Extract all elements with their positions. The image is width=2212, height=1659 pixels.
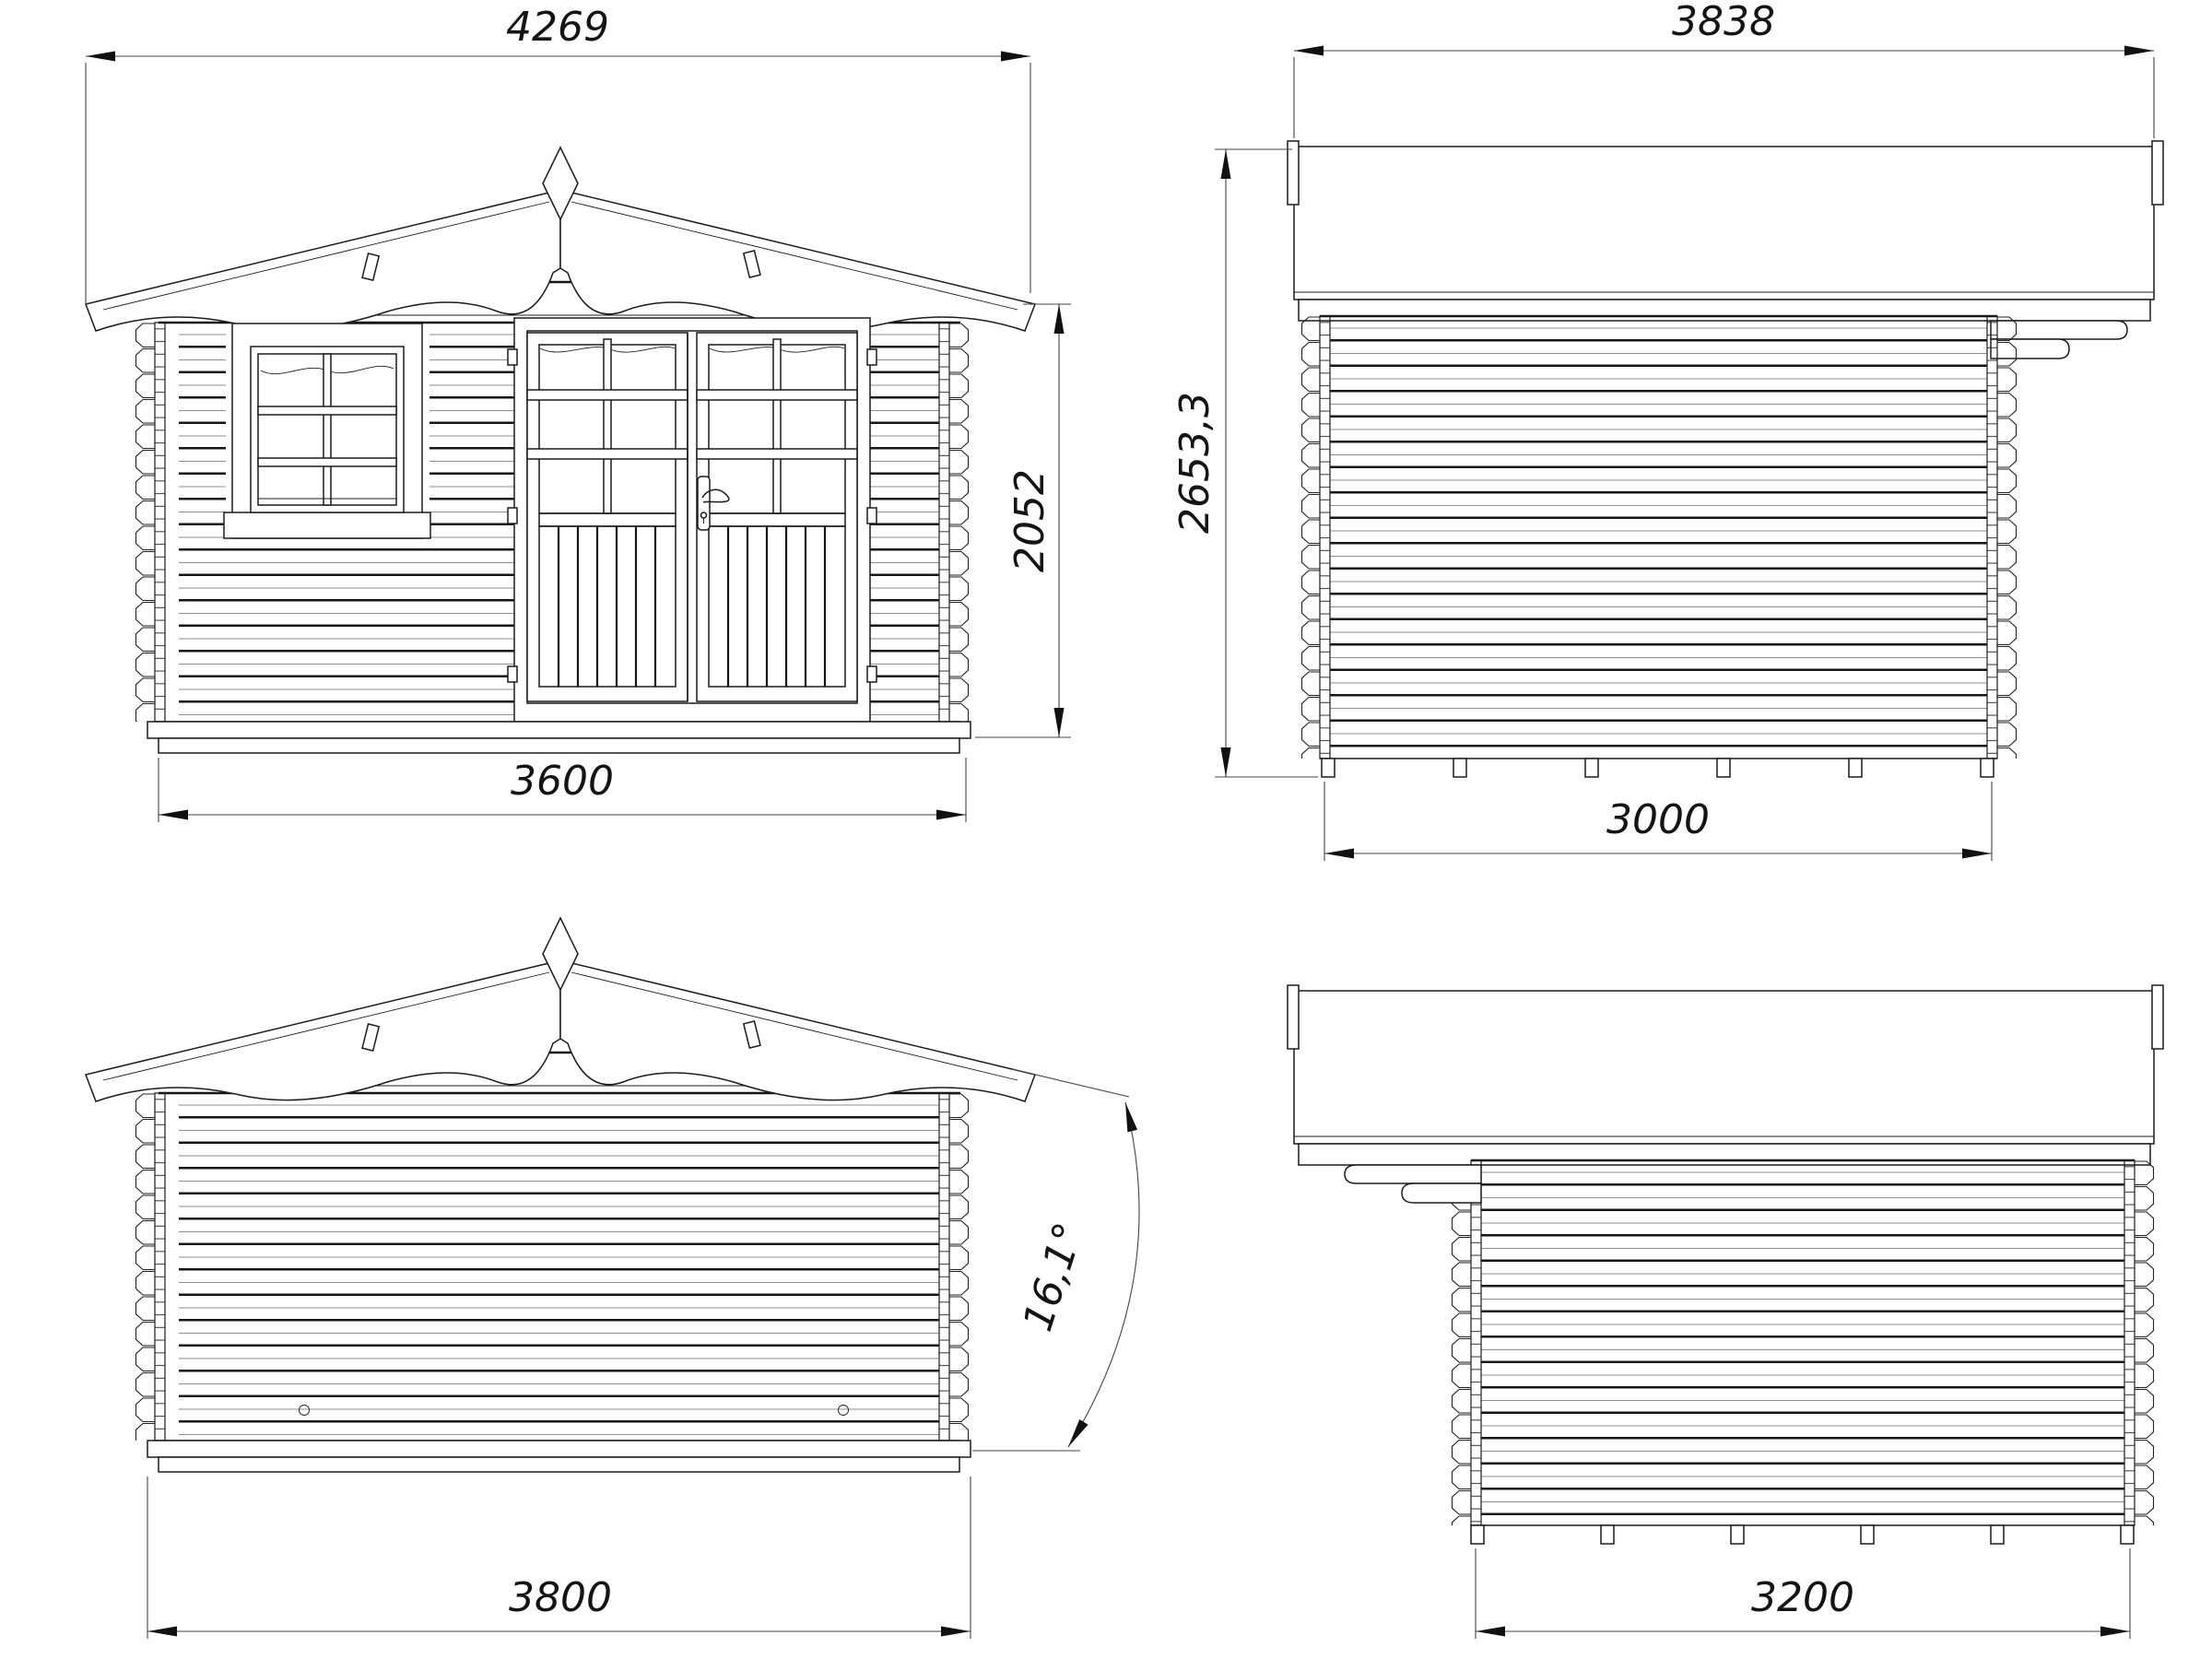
side-b-right-bargeboard (2152, 985, 2163, 1049)
side-b-left-log-ends (1450, 1203, 1471, 1525)
side-a-left-log-ends (1300, 316, 1320, 759)
front-window-sill (224, 512, 430, 538)
side-a-dim-wall-depth: 3000 (1324, 782, 1992, 861)
front-door-right-leaf (697, 333, 857, 701)
front-dim-eave-height: 2052 (975, 304, 1071, 737)
side-b-purlin-ends (1345, 1165, 1481, 1203)
front-roof (86, 147, 1035, 331)
side-a-left-bargeboard (1288, 141, 1299, 205)
side-a-roof-width-label: 3838 (1672, 0, 1775, 45)
side-b-wall (1450, 1160, 2156, 1525)
side-b-dim-wall-depth: 3200 (1476, 1548, 2130, 1639)
front-right-log-ends (949, 323, 971, 722)
front-door-left-leaf (527, 333, 688, 701)
front-wall-width-label: 3600 (511, 758, 614, 805)
drawing-sheet: 4269 2052 3600 (0, 0, 2212, 1659)
side-a-dim-roof-width: 3838 (1294, 0, 2154, 138)
side-b-roof (1288, 985, 2163, 1165)
rear-roof-angle-label: 16,1° (1014, 1218, 1093, 1337)
rear-dim-roof-angle: 16,1° (972, 1069, 1139, 1451)
cabin-technical-drawing: 4269 2052 3600 (0, 0, 2212, 1659)
front-base (147, 722, 971, 753)
side-b-elevation-view: 3200 (1288, 985, 2163, 1639)
side-a-right-log-ends (1997, 316, 2018, 759)
side-a-elevation-view: 3838 2653,3 3000 (1171, 0, 2163, 861)
front-eave-height-label: 2052 (1006, 469, 1053, 572)
front-elevation-view: 4269 2052 3600 (86, 4, 1071, 822)
rear-left-log-ends (134, 1093, 155, 1441)
rear-right-log-ends (949, 1093, 971, 1441)
rear-elevation-view: 3800 16,1° (86, 918, 1139, 1639)
side-a-total-height-label: 2653,3 (1171, 392, 1218, 534)
rear-wall-width-label: 3800 (509, 1574, 612, 1621)
side-a-wall (1300, 316, 2018, 759)
rear-dim-wall-width: 3800 (147, 1477, 971, 1639)
front-window (224, 324, 430, 538)
rear-wall (134, 1086, 971, 1441)
front-roof-width-label: 4269 (506, 4, 609, 51)
side-b-left-bargeboard (1288, 985, 1299, 1049)
side-a-right-bargeboard (2152, 141, 2163, 205)
rear-base (147, 1441, 971, 1472)
front-door (508, 318, 877, 722)
side-a-floor-joists (1322, 759, 1994, 777)
side-a-wall-depth-label: 3000 (1606, 796, 1710, 843)
front-left-log-ends (134, 323, 155, 722)
side-a-roof (1288, 141, 2163, 321)
rear-roof (86, 918, 1035, 1101)
side-b-right-log-ends (2135, 1160, 2156, 1525)
front-dim-wall-width: 3600 (159, 758, 966, 822)
side-b-wall-depth-label: 3200 (1751, 1574, 1854, 1621)
side-b-floor-joists (1471, 1525, 2134, 1544)
